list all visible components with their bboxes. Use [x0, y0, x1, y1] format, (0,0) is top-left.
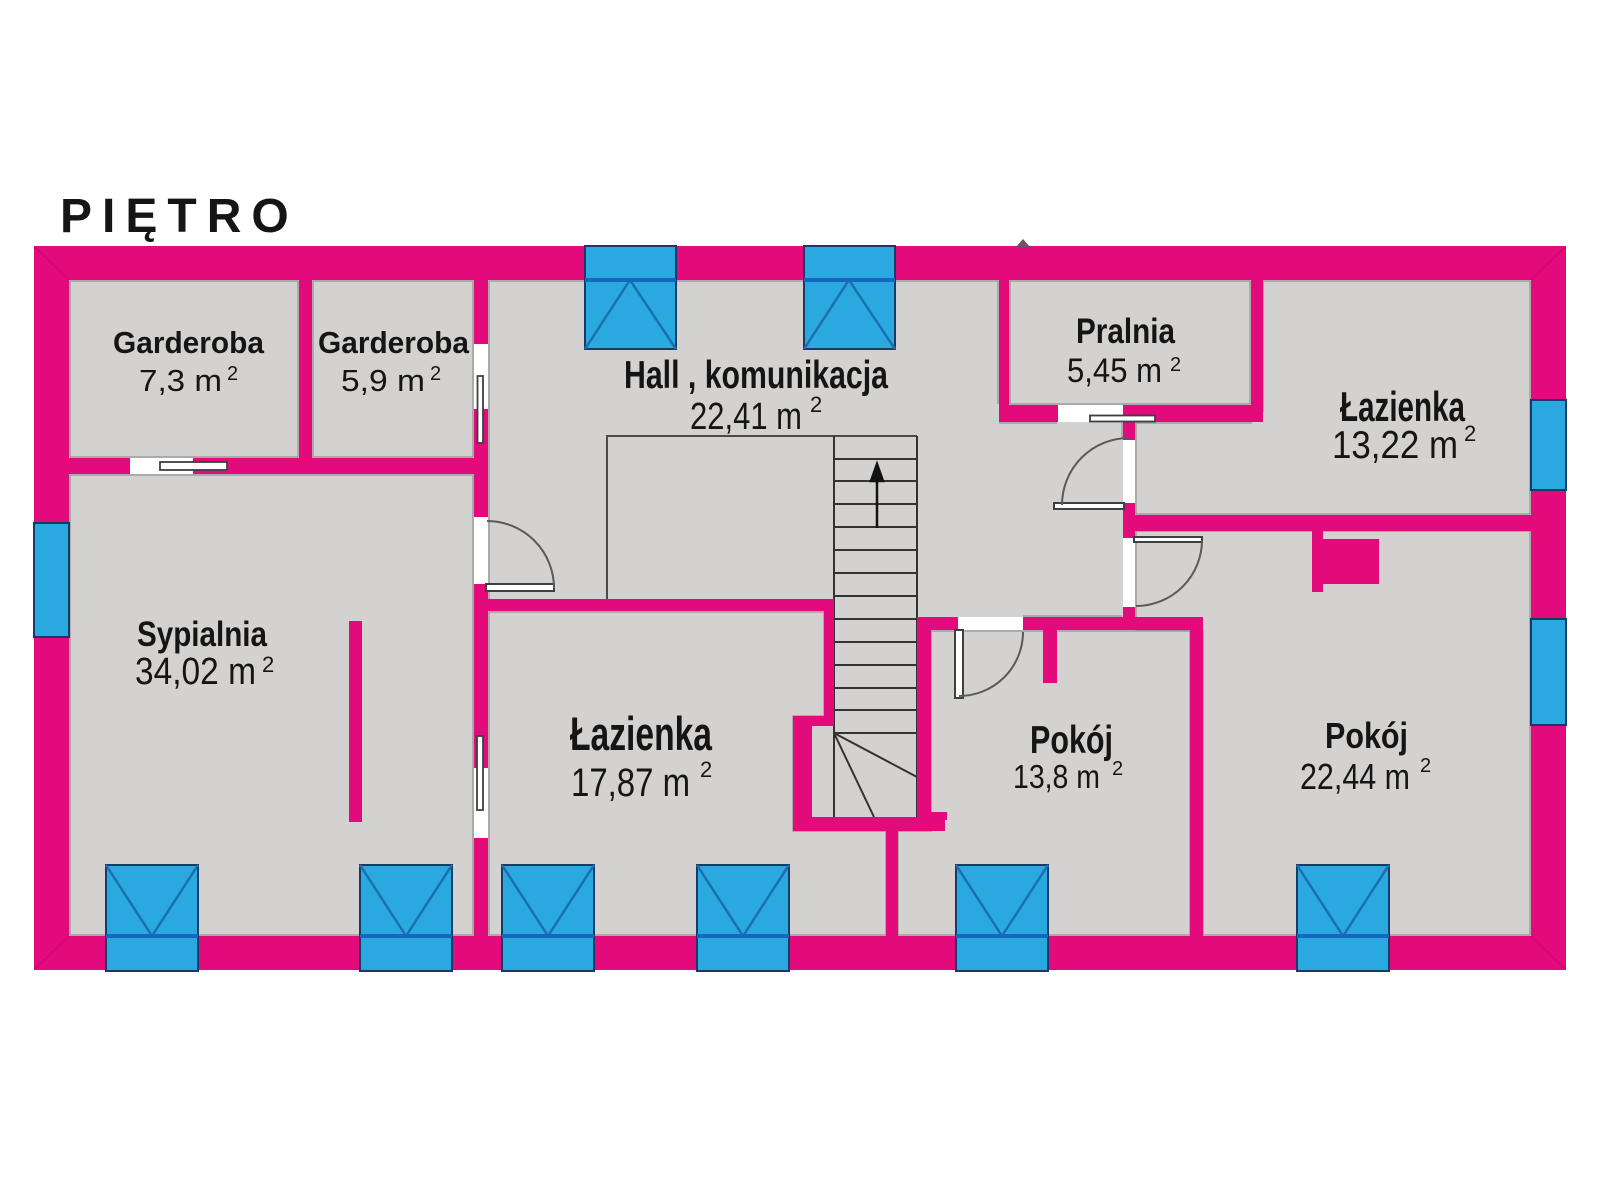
svg-text:2: 2: [262, 652, 274, 677]
svg-text:Sypialnia: Sypialnia: [137, 615, 267, 654]
svg-text:5,45 m: 5,45 m: [1067, 352, 1162, 390]
svg-text:2: 2: [1464, 421, 1476, 446]
svg-text:Łazienka: Łazienka: [1340, 383, 1465, 430]
svg-text:2: 2: [700, 757, 712, 782]
svg-text:22,44 m: 22,44 m: [1300, 756, 1410, 797]
svg-text:22,41 m: 22,41 m: [690, 396, 802, 438]
svg-text:Hall , komunikacja: Hall , komunikacja: [624, 354, 888, 397]
svg-text:2: 2: [810, 392, 822, 417]
svg-text:2: 2: [1112, 758, 1123, 780]
svg-text:2: 2: [1420, 755, 1431, 777]
svg-text:2: 2: [1170, 354, 1181, 376]
svg-text:34,02 m: 34,02 m: [135, 651, 256, 693]
svg-text:Pokój: Pokój: [1325, 715, 1408, 756]
svg-text:2: 2: [430, 363, 441, 385]
svg-text:13,8 m: 13,8 m: [1013, 758, 1100, 795]
svg-text:17,87 m: 17,87 m: [571, 761, 690, 805]
svg-text:13,22 m: 13,22 m: [1332, 424, 1458, 467]
svg-text:Garderoba: Garderoba: [318, 325, 470, 360]
svg-text:5,9 m: 5,9 m: [341, 363, 425, 398]
svg-text:Garderoba: Garderoba: [113, 325, 265, 360]
svg-text:PIĘTRO: PIĘTRO: [60, 190, 299, 243]
svg-text:Pokój: Pokój: [1030, 719, 1113, 762]
svg-text:Pralnia: Pralnia: [1076, 312, 1175, 351]
svg-text:Łazienka: Łazienka: [570, 707, 713, 760]
svg-text:7,3 m: 7,3 m: [139, 363, 222, 398]
svg-text:2: 2: [227, 363, 238, 385]
